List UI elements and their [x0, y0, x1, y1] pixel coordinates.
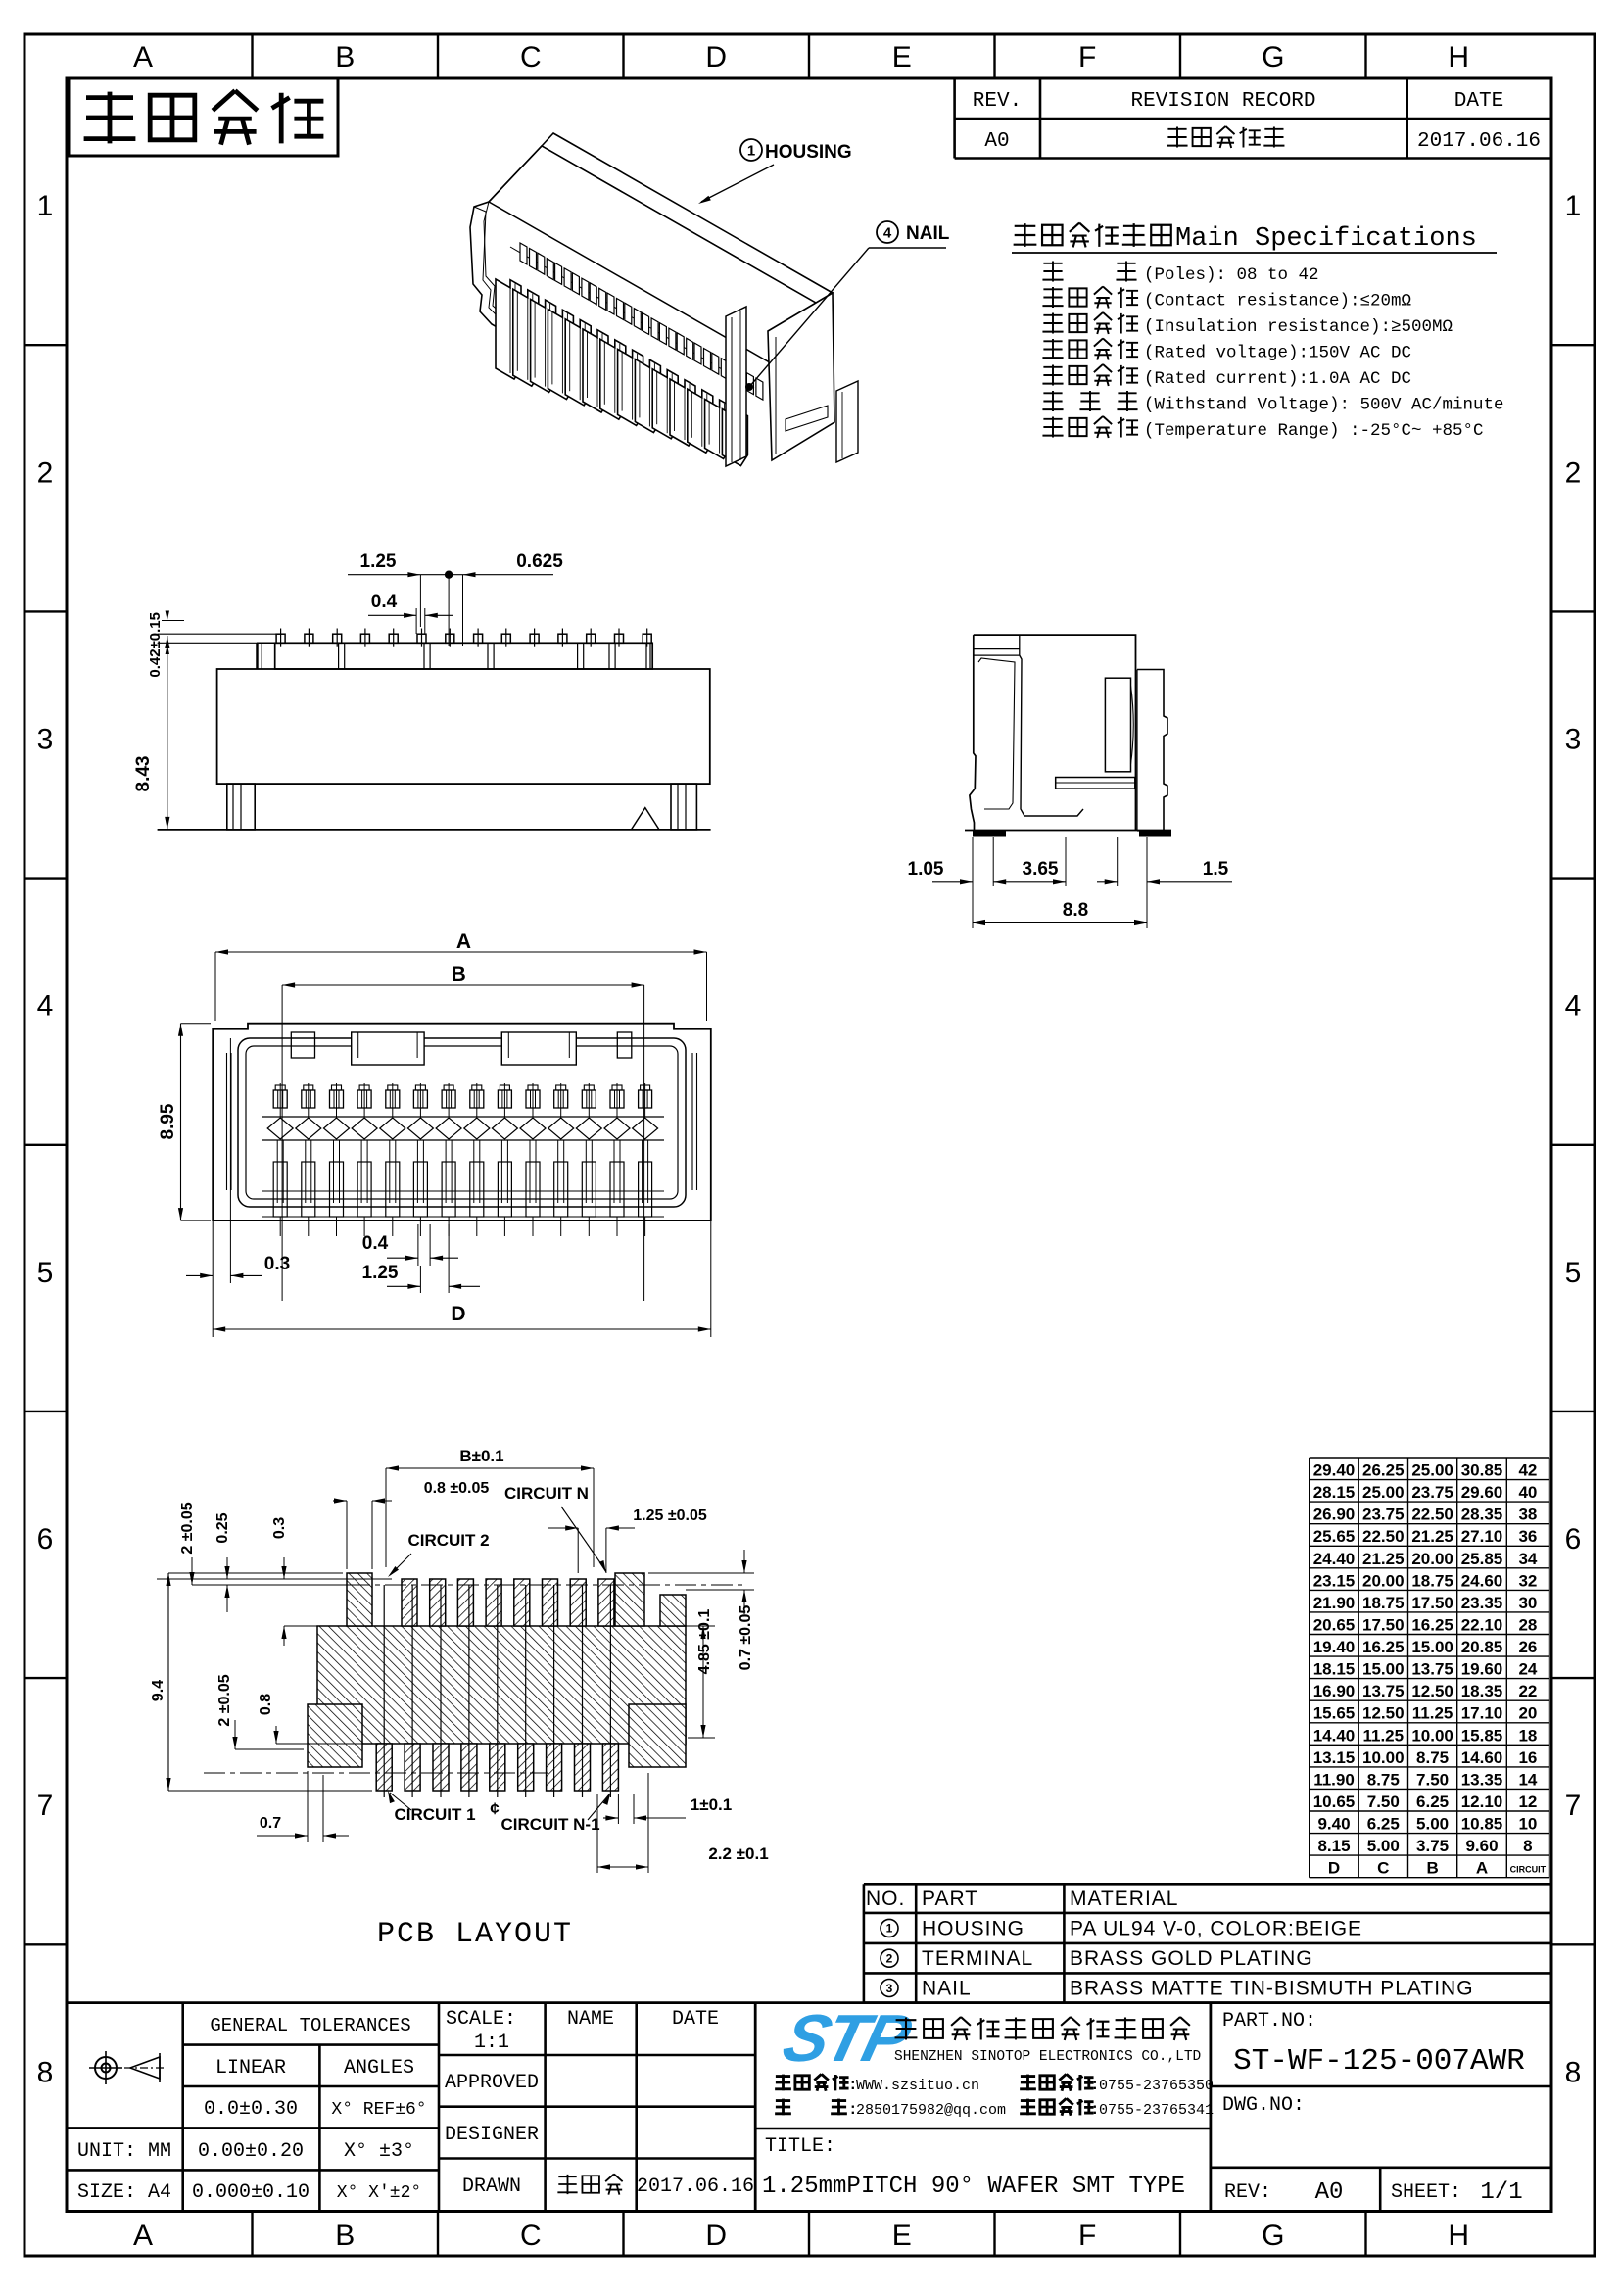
svg-text:9.60: 9.60 — [1465, 1837, 1498, 1855]
svg-text:0.0±0.30: 0.0±0.30 — [204, 2098, 298, 2121]
svg-text:28.15: 28.15 — [1313, 1483, 1356, 1502]
svg-text:1: 1 — [747, 142, 755, 159]
svg-text:C: C — [1377, 1859, 1389, 1878]
svg-text:BRASS GOLD PLATING: BRASS GOLD PLATING — [1070, 1947, 1313, 1970]
svg-text:1.5: 1.5 — [1203, 859, 1229, 880]
svg-text:(Rated current):1.0A AC DC: (Rated current):1.0A AC DC — [1144, 369, 1411, 389]
svg-text:B: B — [452, 963, 466, 985]
svg-text:H: H — [1448, 41, 1469, 73]
svg-text:0.8: 0.8 — [258, 1694, 274, 1715]
svg-text:DATE: DATE — [1454, 90, 1503, 113]
svg-text:8.75: 8.75 — [1367, 1770, 1400, 1789]
svg-text:2: 2 — [37, 456, 54, 489]
svg-text:17.50: 17.50 — [1362, 1615, 1405, 1634]
svg-text:G: G — [1262, 41, 1284, 73]
svg-text:2: 2 — [1565, 456, 1582, 489]
svg-text:REVISION RECORD: REVISION RECORD — [1130, 90, 1315, 113]
svg-text:BRASS MATTE TIN-BISMUTH PLATIN: BRASS MATTE TIN-BISMUTH PLATING — [1070, 1978, 1474, 2000]
svg-text:25.65: 25.65 — [1313, 1527, 1356, 1546]
svg-text:5.00: 5.00 — [1367, 1837, 1400, 1855]
svg-text:DWG.NO:: DWG.NO: — [1222, 2094, 1305, 2117]
svg-text:20: 20 — [1518, 1704, 1537, 1723]
svg-text:19.60: 19.60 — [1461, 1660, 1503, 1679]
svg-text:10.00: 10.00 — [1362, 1748, 1405, 1767]
svg-text:8.95: 8.95 — [158, 1103, 178, 1139]
svg-text:PCB LAYOUT: PCB LAYOUT — [377, 1918, 573, 1951]
svg-text:25.85: 25.85 — [1461, 1550, 1503, 1568]
svg-text:TERMINAL: TERMINAL — [922, 1947, 1033, 1970]
svg-text:4: 4 — [37, 990, 54, 1023]
svg-text:B: B — [1426, 1859, 1438, 1878]
svg-text:1/1: 1/1 — [1480, 2179, 1522, 2206]
svg-text:11.25: 11.25 — [1362, 1726, 1404, 1745]
svg-text:2 ±0.05: 2 ±0.05 — [216, 1674, 233, 1726]
svg-text:PART.NO:: PART.NO: — [1222, 2010, 1316, 2033]
svg-text:¢: ¢ — [490, 1799, 500, 1818]
svg-text:13.35: 13.35 — [1461, 1770, 1503, 1789]
svg-text:25.00: 25.00 — [1362, 1483, 1405, 1502]
svg-text:A0: A0 — [1315, 2179, 1344, 2206]
svg-text:F: F — [1078, 2220, 1096, 2252]
svg-text:8: 8 — [1565, 2056, 1582, 2088]
svg-text:23.15: 23.15 — [1313, 1571, 1356, 1590]
svg-text:DRAWN: DRAWN — [462, 2176, 521, 2198]
svg-text:SHEET:: SHEET: — [1391, 2181, 1461, 2204]
svg-text:19.40: 19.40 — [1313, 1638, 1356, 1656]
svg-text:SCALE:: SCALE: — [446, 2008, 516, 2031]
svg-text:WWW.szsituo.cn: WWW.szsituo.cn — [856, 2078, 979, 2094]
svg-text:20.65: 20.65 — [1313, 1615, 1356, 1634]
svg-text:2850175982@qq.com: 2850175982@qq.com — [856, 2102, 1006, 2119]
svg-text:18: 18 — [1518, 1726, 1537, 1745]
svg-text:5: 5 — [1565, 1257, 1582, 1289]
svg-text:18.35: 18.35 — [1461, 1682, 1503, 1700]
svg-text:20.00: 20.00 — [1411, 1550, 1453, 1568]
svg-text:0.4: 0.4 — [362, 1233, 389, 1254]
svg-text:10: 10 — [1518, 1815, 1537, 1834]
svg-text:22.10: 22.10 — [1461, 1615, 1503, 1634]
svg-text:B±0.1: B±0.1 — [459, 1447, 503, 1465]
svg-text:14.60: 14.60 — [1461, 1748, 1503, 1767]
svg-text:21.25: 21.25 — [1362, 1550, 1405, 1568]
svg-text:A: A — [1476, 1859, 1488, 1878]
svg-text:20.85: 20.85 — [1461, 1638, 1503, 1656]
svg-text:F: F — [1078, 41, 1096, 73]
svg-text:15.65: 15.65 — [1313, 1704, 1356, 1723]
svg-text:22: 22 — [1518, 1682, 1537, 1700]
svg-text:ST-WF-125-007AWR: ST-WF-125-007AWR — [1233, 2044, 1525, 2079]
svg-text:(Temperature Range) :-25°C~ +8: (Temperature Range) :-25°C~ +85°C — [1144, 421, 1484, 441]
svg-text:0.42±0.15: 0.42±0.15 — [147, 612, 164, 678]
svg-text:18.15: 18.15 — [1313, 1660, 1356, 1679]
svg-text:CIRCUIT N: CIRCUIT N — [504, 1484, 589, 1503]
svg-text:ANGLES: ANGLES — [344, 2057, 414, 2080]
svg-text:22.50: 22.50 — [1411, 1506, 1453, 1524]
svg-text:H: H — [1448, 2220, 1469, 2252]
svg-text:6: 6 — [1565, 1523, 1582, 1555]
svg-text:29.40: 29.40 — [1313, 1461, 1356, 1480]
svg-text:0.7: 0.7 — [260, 1815, 281, 1832]
svg-text:REV.: REV. — [973, 90, 1022, 113]
svg-text:0.3: 0.3 — [271, 1517, 288, 1539]
svg-text:17.10: 17.10 — [1461, 1704, 1503, 1723]
svg-text:29.60: 29.60 — [1461, 1483, 1503, 1502]
svg-text:8.8: 8.8 — [1063, 900, 1088, 921]
svg-text:6: 6 — [37, 1523, 54, 1555]
svg-text:16.90: 16.90 — [1313, 1682, 1356, 1700]
svg-text:23.75: 23.75 — [1411, 1483, 1453, 1502]
svg-text:28: 28 — [1518, 1615, 1537, 1634]
svg-text:15.00: 15.00 — [1411, 1638, 1453, 1656]
svg-text:X° ±3°: X° ±3° — [344, 2140, 414, 2163]
svg-text:1: 1 — [37, 190, 54, 222]
svg-text:7: 7 — [37, 1790, 54, 1822]
svg-text:38: 38 — [1518, 1506, 1537, 1524]
svg-text:40: 40 — [1518, 1483, 1537, 1502]
svg-text:23.35: 23.35 — [1461, 1594, 1503, 1612]
svg-text:7.50: 7.50 — [1416, 1770, 1449, 1789]
svg-text:(Contact resistance):≤20mΩ: (Contact resistance):≤20mΩ — [1144, 292, 1411, 311]
svg-text:13.75: 13.75 — [1411, 1660, 1453, 1679]
svg-text:9.40: 9.40 — [1317, 1815, 1350, 1834]
svg-text:1.05: 1.05 — [908, 859, 944, 880]
svg-text:X° REF±6°: X° REF±6° — [331, 2100, 426, 2120]
svg-text:15.00: 15.00 — [1362, 1660, 1405, 1679]
svg-text:36: 36 — [1518, 1527, 1537, 1546]
svg-text:17.50: 17.50 — [1411, 1594, 1453, 1612]
svg-text:1.25 ±0.05: 1.25 ±0.05 — [633, 1507, 707, 1524]
svg-text:18.75: 18.75 — [1362, 1594, 1405, 1612]
svg-text:GENERAL TOLERANCES: GENERAL TOLERANCES — [210, 2015, 410, 2036]
svg-text:MATERIAL: MATERIAL — [1070, 1888, 1178, 1910]
svg-text:0755-23765350: 0755-23765350 — [1099, 2078, 1214, 2094]
svg-text:15.85: 15.85 — [1461, 1726, 1503, 1745]
svg-text:A: A — [456, 931, 471, 953]
svg-text:24.40: 24.40 — [1313, 1550, 1356, 1568]
svg-text:2 ±0.05: 2 ±0.05 — [179, 1502, 196, 1554]
svg-text:5: 5 — [37, 1257, 54, 1289]
svg-text:3.65: 3.65 — [1023, 859, 1059, 880]
svg-text:0.00±0.20: 0.00±0.20 — [198, 2140, 304, 2163]
svg-text:C: C — [520, 41, 542, 73]
svg-text:A: A — [133, 2220, 153, 2252]
svg-text:4.85 ±0.1: 4.85 ±0.1 — [696, 1609, 713, 1675]
svg-text:13.75: 13.75 — [1362, 1682, 1405, 1700]
svg-text:A: A — [133, 41, 153, 73]
svg-text:13.15: 13.15 — [1313, 1748, 1356, 1767]
svg-text:PA UL94 V-0, COLOR:BEIGE: PA UL94 V-0, COLOR:BEIGE — [1070, 1917, 1362, 1939]
svg-text:23.75: 23.75 — [1362, 1506, 1405, 1524]
svg-text:28.35: 28.35 — [1461, 1506, 1503, 1524]
svg-text:0.3: 0.3 — [264, 1254, 290, 1274]
svg-text:11.25: 11.25 — [1412, 1704, 1453, 1723]
svg-text:1±0.1: 1±0.1 — [691, 1795, 732, 1814]
svg-text:24: 24 — [1518, 1660, 1537, 1679]
svg-text:11.90: 11.90 — [1313, 1770, 1355, 1789]
svg-text:5.00: 5.00 — [1416, 1815, 1449, 1834]
svg-text:1.25: 1.25 — [360, 551, 397, 572]
svg-text:26.90: 26.90 — [1313, 1506, 1356, 1524]
svg-text:4: 4 — [1565, 990, 1582, 1023]
svg-text:18.75: 18.75 — [1411, 1571, 1453, 1590]
svg-text:2017.06.16: 2017.06.16 — [637, 2176, 754, 2198]
svg-text:(Rated voltage):150V AC DC: (Rated voltage):150V AC DC — [1144, 344, 1411, 363]
svg-text:8.75: 8.75 — [1416, 1748, 1449, 1767]
svg-text:2: 2 — [886, 1952, 893, 1966]
svg-text:8: 8 — [1523, 1837, 1532, 1855]
svg-text:Main Specifications: Main Specifications — [1175, 224, 1477, 254]
svg-text:NO.: NO. — [866, 1888, 905, 1910]
svg-text:30: 30 — [1518, 1594, 1537, 1612]
svg-text:A0: A0 — [984, 130, 1009, 153]
svg-text:10.85: 10.85 — [1461, 1815, 1503, 1834]
svg-text:10.65: 10.65 — [1313, 1793, 1356, 1811]
svg-text:G: G — [1262, 2220, 1284, 2252]
svg-text:8: 8 — [37, 2056, 54, 2088]
svg-text:12.50: 12.50 — [1362, 1704, 1405, 1723]
svg-text:DESIGNER: DESIGNER — [445, 2124, 539, 2146]
svg-text:20.00: 20.00 — [1362, 1571, 1405, 1590]
svg-text:26.25: 26.25 — [1362, 1461, 1405, 1480]
svg-text:2017.06.16: 2017.06.16 — [1417, 130, 1541, 153]
svg-text:0.7 ±0.05: 0.7 ±0.05 — [738, 1605, 754, 1671]
svg-text:3: 3 — [37, 724, 54, 756]
svg-text:1:1: 1:1 — [474, 2032, 509, 2054]
svg-text:HOUSING: HOUSING — [922, 1917, 1024, 1939]
svg-text:12.50: 12.50 — [1411, 1682, 1453, 1700]
svg-text:6.25: 6.25 — [1367, 1815, 1400, 1834]
svg-text:3: 3 — [1565, 724, 1582, 756]
svg-text:0755-23765341: 0755-23765341 — [1099, 2102, 1214, 2119]
svg-text:9.4: 9.4 — [150, 1680, 167, 1701]
svg-text:8.15: 8.15 — [1317, 1837, 1350, 1855]
svg-text:CIRCUIT N-1: CIRCUIT N-1 — [500, 1815, 599, 1834]
svg-text:34: 34 — [1518, 1550, 1537, 1568]
svg-text:NAIL: NAIL — [922, 1978, 972, 2000]
svg-text:D: D — [705, 2220, 727, 2252]
svg-text:D: D — [451, 1303, 465, 1325]
svg-text:14.40: 14.40 — [1313, 1726, 1356, 1745]
svg-text:26: 26 — [1518, 1638, 1537, 1656]
svg-text:7: 7 — [1565, 1790, 1582, 1822]
svg-text:42: 42 — [1518, 1461, 1537, 1480]
svg-text:NAME: NAME — [567, 2008, 614, 2031]
svg-text:8.43: 8.43 — [133, 756, 154, 792]
svg-text:21.90: 21.90 — [1313, 1594, 1356, 1612]
svg-text:1: 1 — [886, 1922, 893, 1936]
svg-text:0.625: 0.625 — [516, 551, 563, 572]
svg-text:DATE: DATE — [672, 2008, 719, 2031]
svg-text:2.2 ±0.1: 2.2 ±0.1 — [708, 1844, 768, 1863]
svg-text:22.50: 22.50 — [1362, 1527, 1405, 1546]
svg-text:(Withstand Voltage): 500V AC/m: (Withstand Voltage): 500V AC/minute — [1144, 396, 1504, 415]
svg-text:APPROVED: APPROVED — [445, 2072, 539, 2094]
svg-text:NAIL: NAIL — [906, 223, 950, 244]
svg-text:LINEAR: LINEAR — [215, 2057, 286, 2080]
svg-text:PART: PART — [922, 1888, 978, 1910]
svg-text:7.50: 7.50 — [1367, 1793, 1400, 1811]
svg-text:3.75: 3.75 — [1416, 1837, 1449, 1855]
svg-text:B: B — [335, 2220, 355, 2252]
svg-text:1.25: 1.25 — [362, 1263, 399, 1283]
svg-text:25.00: 25.00 — [1411, 1461, 1453, 1480]
svg-text:CIRCUIT 2: CIRCUIT 2 — [407, 1531, 489, 1550]
svg-text:4: 4 — [883, 224, 892, 241]
svg-text:C: C — [520, 2220, 542, 2252]
svg-text:1.25mmPITCH 90° WAFER SMT TYPE: 1.25mmPITCH 90° WAFER SMT TYPE — [762, 2174, 1185, 2200]
svg-text:27.10: 27.10 — [1461, 1527, 1503, 1546]
svg-text:3: 3 — [886, 1982, 893, 1995]
svg-text:B: B — [335, 41, 355, 73]
svg-text:16.25: 16.25 — [1362, 1638, 1405, 1656]
svg-text:SIZE: A4: SIZE: A4 — [77, 2181, 171, 2204]
svg-text:UNIT: MM: UNIT: MM — [77, 2140, 171, 2163]
svg-text:0.000±0.10: 0.000±0.10 — [192, 2181, 310, 2204]
svg-text:E: E — [892, 41, 912, 73]
svg-text:21.25: 21.25 — [1411, 1527, 1453, 1546]
svg-text:30.85: 30.85 — [1461, 1461, 1503, 1480]
svg-text:SHENZHEN SINOTOP ELECTRONICS C: SHENZHEN SINOTOP ELECTRONICS CO.,LTD — [894, 2049, 1201, 2065]
svg-text:HOUSING: HOUSING — [765, 142, 852, 163]
svg-text:E: E — [892, 2220, 912, 2252]
svg-text:CIRCUIT: CIRCUIT — [1510, 1865, 1547, 1875]
svg-text:10.00: 10.00 — [1411, 1726, 1453, 1745]
svg-text:(Poles): 08 to 42: (Poles): 08 to 42 — [1144, 265, 1319, 285]
svg-text:D: D — [1328, 1859, 1340, 1878]
svg-text:16.25: 16.25 — [1411, 1615, 1453, 1634]
svg-text:14: 14 — [1518, 1770, 1537, 1789]
svg-text:1: 1 — [1565, 190, 1582, 222]
svg-text:12: 12 — [1518, 1793, 1537, 1811]
svg-text:32: 32 — [1518, 1571, 1537, 1590]
svg-text:6.25: 6.25 — [1416, 1793, 1449, 1811]
svg-text:D: D — [705, 41, 727, 73]
svg-text:0.25: 0.25 — [214, 1512, 231, 1543]
svg-text:0.8 ±0.05: 0.8 ±0.05 — [424, 1480, 490, 1497]
svg-text:TITLE:: TITLE: — [765, 2135, 835, 2158]
svg-text:12.10: 12.10 — [1461, 1793, 1503, 1811]
svg-text:24.60: 24.60 — [1461, 1571, 1503, 1590]
svg-text:(Insulation resistance):≥500MΩ: (Insulation resistance):≥500MΩ — [1144, 317, 1453, 337]
svg-text:REV:: REV: — [1224, 2181, 1271, 2204]
svg-text:CIRCUIT 1: CIRCUIT 1 — [394, 1805, 475, 1824]
svg-text:X° X'±2°: X° X'±2° — [337, 2183, 421, 2203]
svg-text:0.4: 0.4 — [371, 592, 398, 612]
svg-text:16: 16 — [1518, 1748, 1537, 1767]
